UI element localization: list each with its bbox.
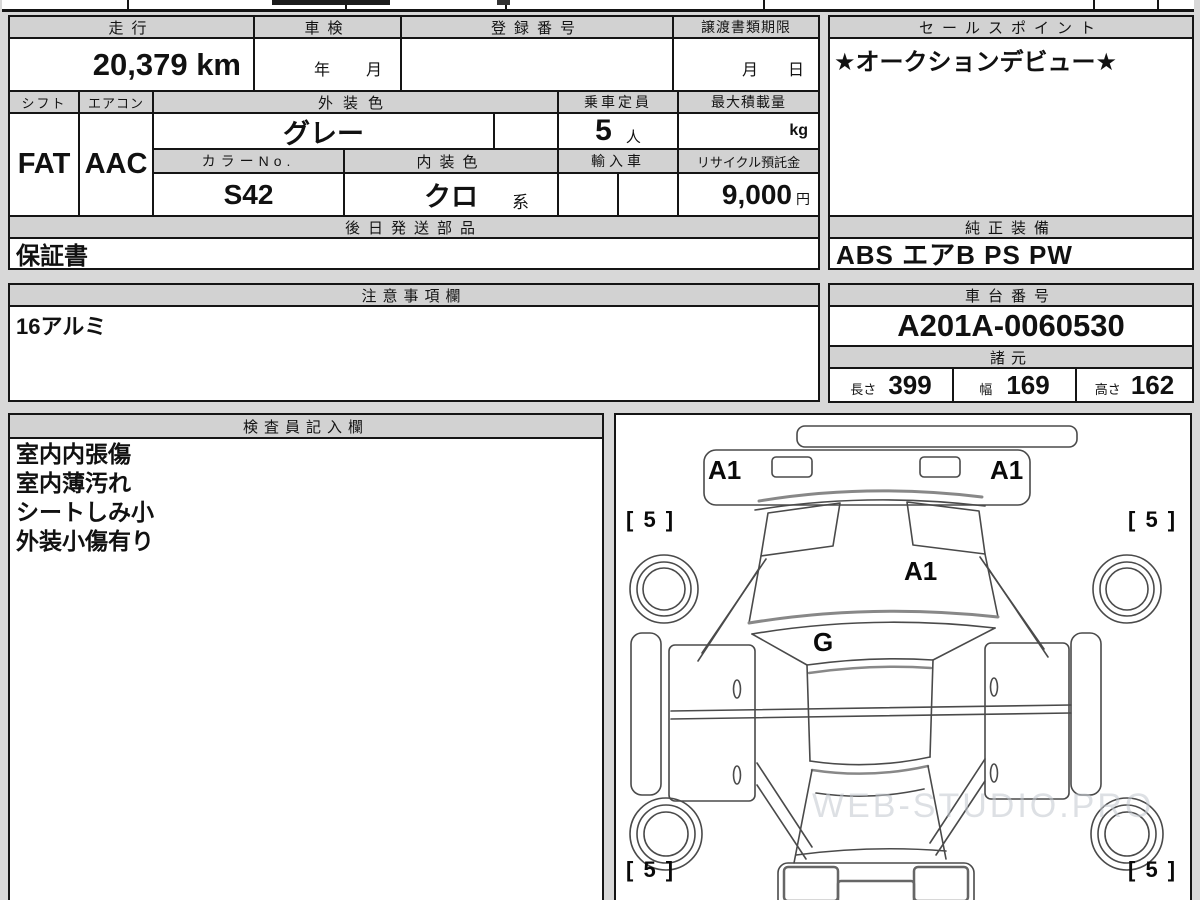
- inspection-year-unit: 年: [314, 56, 330, 80]
- sales-point-header: セールスポイント: [828, 15, 1194, 39]
- length-value: 399: [888, 370, 931, 401]
- int-color-value: クロ 系: [343, 172, 559, 217]
- equipment-value: ABS エアB PS PW: [828, 237, 1194, 270]
- damage-mark-hood: A1: [904, 556, 937, 587]
- sales-point-value: ★オークションデビュー★: [828, 37, 1194, 217]
- inspection-month-unit: 月: [366, 56, 382, 80]
- height-label: 高さ: [1095, 379, 1121, 398]
- int-color-suffix: 系: [512, 188, 529, 213]
- notes-value: 16アルミ: [8, 305, 820, 402]
- inspector-notes: 室内内張傷 室内薄汚れ シートしみ小 外装小傷有り: [8, 437, 604, 900]
- width-cell: 幅 169: [952, 367, 1077, 403]
- clipped-top-row: [2, 0, 1194, 12]
- equipment-header: 純正装備: [828, 215, 1194, 239]
- damage-mark-front-right: A1: [990, 455, 1023, 486]
- ext-color-header: 外装色: [152, 90, 559, 114]
- tire-depth-front-left: [ 5 ]: [626, 507, 675, 533]
- capacity-header: 乗車定員: [557, 90, 679, 114]
- damage-mark-glass: G: [813, 627, 833, 658]
- shift-header: シフト: [8, 90, 80, 114]
- transfer-deadline-value: 月日: [672, 37, 820, 92]
- recycle-header: リサイクル預託金: [677, 148, 820, 174]
- chassis-header: 車台番号: [828, 283, 1194, 307]
- car-diagram-panel: A1 A1 A1 G [ 5 ] [ 5 ] [ 5 ] [ 5 ] WEB-S…: [614, 413, 1192, 900]
- aircon-header: エアコン: [78, 90, 154, 114]
- length-label: 長さ: [850, 379, 876, 398]
- width-label: 幅: [979, 379, 992, 398]
- specs-header: 諸元: [828, 345, 1194, 369]
- inspector-note-line: 室内内張傷: [16, 440, 154, 469]
- chassis-number: A201A-0060530: [828, 305, 1194, 347]
- later-parts-header: 後日発送部品: [8, 215, 820, 239]
- tire-depth-rear-left: [ 5 ]: [626, 857, 675, 883]
- width-value: 169: [1006, 370, 1049, 401]
- registration-header: 登録番号: [400, 15, 674, 39]
- color-no-value: S42: [152, 172, 345, 217]
- tire-depth-rear-right: [ 5 ]: [1128, 857, 1177, 883]
- length-cell: 長さ 399: [828, 367, 954, 403]
- capacity-number: 5: [595, 114, 612, 148]
- max-load-value: kg: [677, 112, 820, 150]
- import-value-1: [557, 172, 619, 217]
- color-no-header: カラーNo.: [152, 148, 345, 174]
- shift-value: FAT: [8, 112, 80, 217]
- ext-color-extra: [493, 112, 559, 150]
- watermark: WEB-STUDIO.PRO: [812, 787, 1154, 826]
- notes-header: 注意事項欄: [8, 283, 820, 307]
- capacity-unit: 人: [626, 126, 641, 147]
- auction-sheet: 走行 車検 登録番号 譲渡書類期限 20,379 km 年月 月日 シフト エア…: [0, 0, 1200, 900]
- transfer-deadline-header: 譲渡書類期限: [672, 15, 820, 39]
- inspector-note-line: シートしみ小: [16, 498, 154, 527]
- recycle-unit: 円: [796, 189, 810, 209]
- import-value-2: [617, 172, 679, 217]
- import-header: 輸入車: [557, 148, 679, 174]
- max-load-header: 最大積載量: [677, 90, 820, 114]
- registration-value: [400, 37, 674, 92]
- aircon-value: AAC: [78, 112, 154, 217]
- clipped-text-fragment: [497, 0, 510, 5]
- inspector-note-line: 外装小傷有り: [16, 527, 154, 556]
- car-diagram: [616, 415, 1190, 900]
- deadline-day-unit: 日: [788, 56, 804, 80]
- inspection-value: 年月: [253, 37, 402, 92]
- clipped-text-fragment: [272, 0, 390, 5]
- damage-mark-front-left: A1: [708, 455, 741, 486]
- int-color-header: 内装色: [343, 148, 559, 174]
- later-parts-value: 保証書: [8, 237, 820, 270]
- inspector-header: 検査員記入欄: [8, 413, 604, 439]
- capacity-value: 5 人: [557, 112, 679, 150]
- height-cell: 高さ 162: [1075, 367, 1194, 403]
- inspection-header: 車検: [253, 15, 402, 39]
- recycle-value: 9,000 円: [677, 172, 820, 217]
- deadline-month-unit: 月: [742, 56, 758, 80]
- int-color-name: クロ: [424, 175, 478, 214]
- ext-color-value: グレー: [152, 112, 495, 150]
- inspector-note-line: 室内薄汚れ: [16, 469, 154, 498]
- recycle-amount: 9,000: [722, 179, 792, 211]
- tire-depth-front-right: [ 5 ]: [1128, 507, 1177, 533]
- mileage-value: 20,379 km: [8, 37, 255, 92]
- mileage-header: 走行: [8, 15, 255, 39]
- height-value: 162: [1131, 370, 1174, 401]
